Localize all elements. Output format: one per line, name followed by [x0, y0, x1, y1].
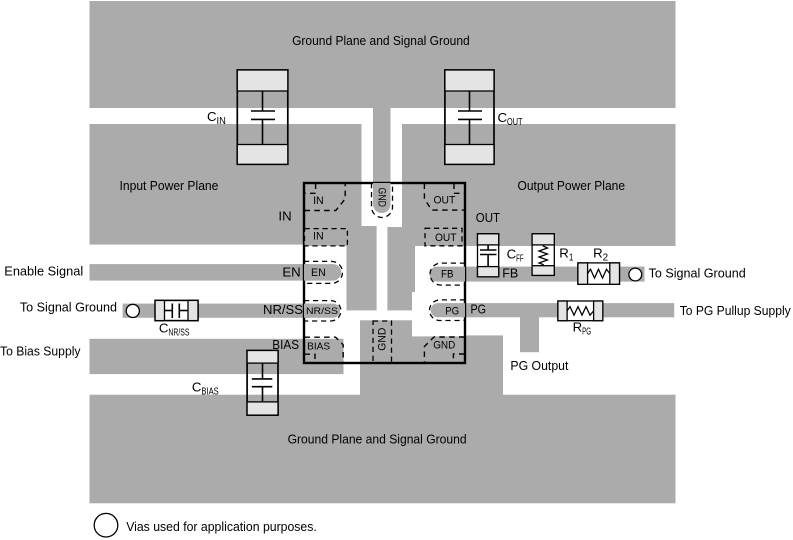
svg-text:NR/SS: NR/SS — [263, 302, 303, 317]
svg-text:To Signal Ground: To Signal Ground — [20, 300, 117, 315]
svg-text:IN: IN — [313, 195, 324, 207]
svg-text:FB: FB — [441, 268, 454, 280]
svg-text:Enable Signal: Enable Signal — [4, 264, 83, 279]
svg-text:NR/SS: NR/SS — [306, 306, 338, 317]
svg-text:OUT: OUT — [434, 195, 456, 207]
svg-text:FB: FB — [502, 265, 518, 280]
svg-text:OUT: OUT — [476, 210, 500, 225]
svg-text:GND: GND — [433, 339, 455, 351]
svg-text:To Signal Ground: To Signal Ground — [649, 265, 746, 280]
svg-text:EN: EN — [282, 264, 300, 279]
svg-text:OUT: OUT — [435, 232, 457, 244]
svg-text:EN: EN — [311, 267, 326, 279]
svg-text:Ground Plane and Signal Ground: Ground Plane and Signal Ground — [292, 33, 470, 48]
svg-text:Output Power Plane: Output Power Plane — [518, 178, 626, 193]
svg-text:BIAS: BIAS — [307, 341, 330, 352]
svg-text:Input Power Plane: Input Power Plane — [120, 178, 219, 193]
svg-text:To Bias Supply: To Bias Supply — [0, 344, 81, 359]
svg-text:PG Output: PG Output — [510, 358, 568, 373]
svg-text:PG: PG — [471, 302, 487, 317]
svg-text:PG: PG — [445, 306, 459, 318]
svg-text:IN: IN — [278, 209, 291, 224]
svg-text:Ground Plane and Signal Ground: Ground Plane and Signal Ground — [288, 432, 467, 447]
svg-text:Vias used for application purp: Vias used for application purposes. — [126, 519, 317, 534]
svg-text:To PG Pullup Supply: To PG Pullup Supply — [680, 303, 791, 318]
svg-text:IN: IN — [313, 231, 324, 243]
svg-text:GND: GND — [376, 327, 388, 350]
svg-text:GND: GND — [376, 188, 388, 208]
